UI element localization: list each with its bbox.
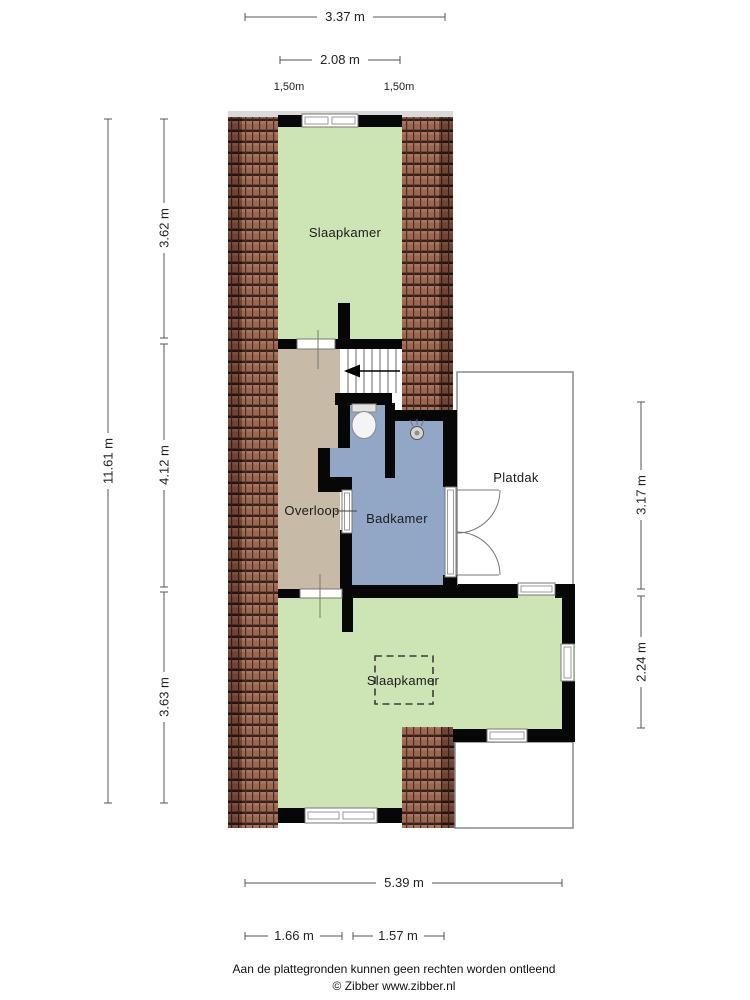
- dim-label: 5.39 m: [384, 875, 424, 890]
- wall-segment: [278, 115, 302, 127]
- wall-segment: [377, 808, 402, 823]
- wall-segment: [278, 589, 300, 598]
- wall-segment: [527, 729, 575, 742]
- room-label-flat-roof: Platdak: [493, 470, 539, 485]
- footer: Aan de plattegronden kunnen geen rechten…: [233, 962, 556, 993]
- headroom-label-right: 1,50m: [384, 81, 415, 93]
- dim-top-inner-width: 2.08 m: [280, 52, 400, 67]
- dim-right-top: 3.17 m: [634, 402, 649, 589]
- room-label-bedroom-top: Slaapkamer: [309, 225, 382, 240]
- flat-roof-lower: [455, 742, 573, 828]
- window-bottom-bedroom: [305, 808, 377, 823]
- dim-label: 3.17 m: [634, 475, 649, 515]
- wall-segment: [443, 410, 457, 487]
- dim-bottom-left: 1.66 m: [245, 928, 342, 943]
- footer-credit: © Zibber www.zibber.nl: [333, 979, 456, 993]
- roof-strip-left-edge: [228, 117, 242, 828]
- headroom-label-left: 1,50m: [274, 81, 305, 93]
- room-label-bathroom: Badkamer: [366, 511, 428, 526]
- dim-left-top: 3.62 m: [157, 119, 172, 338]
- window-extension-bottom: [487, 729, 527, 742]
- dim-bottom-right: 1.57 m: [353, 928, 444, 943]
- stair-well: [340, 343, 402, 393]
- wall-segment: [358, 115, 402, 127]
- dim-left-total: 11.61 m: [101, 119, 116, 803]
- floorplan-canvas: Slaapkamer Overloop Badkamer Platdak Sla…: [0, 0, 750, 1000]
- wall-segment: [342, 598, 353, 632]
- room-label-bedroom-bottom: Slaapkamer: [367, 673, 440, 688]
- dim-bottom-total: 5.39 m: [245, 875, 562, 890]
- window-top-bedroom: [302, 114, 358, 127]
- roof-patch-bottom-edge: [441, 727, 455, 828]
- dim-label: 3.62 m: [157, 208, 172, 248]
- floorplan-page: Slaapkamer Overloop Badkamer Platdak Sla…: [0, 0, 750, 1000]
- wall-segment: [562, 584, 575, 644]
- dim-label: 2.08 m: [320, 52, 360, 67]
- window-extension-right: [561, 644, 574, 681]
- toilet-icon: [352, 404, 376, 439]
- wall-segment: [338, 393, 350, 448]
- wall-segment: [385, 403, 395, 478]
- wall-segment: [278, 808, 305, 823]
- wall-segment: [453, 729, 487, 742]
- wall-segment: [338, 303, 350, 343]
- wall-segment: [340, 530, 352, 592]
- dim-label: 3.37 m: [325, 9, 365, 24]
- dim-label: 2.24 m: [634, 642, 649, 682]
- wall-segment: [278, 339, 297, 349]
- footer-disclaimer: Aan de plattegronden kunnen geen rechten…: [233, 962, 556, 976]
- dim-left-middle: 4.12 m: [157, 344, 172, 587]
- dim-top-width: 3.37 m: [245, 9, 445, 24]
- room-label-landing: Overloop: [284, 503, 339, 518]
- dim-label: 4.12 m: [157, 445, 172, 485]
- dim-label: 1.57 m: [378, 928, 418, 943]
- window-extension-top: [518, 583, 555, 595]
- dim-label: 1.66 m: [274, 928, 314, 943]
- dim-label: 11.61 m: [101, 438, 116, 484]
- wall-segment: [458, 584, 518, 598]
- dim-left-bottom: 3.63 m: [157, 592, 172, 803]
- dim-label: 3.63 m: [157, 677, 172, 717]
- dim-right-bottom: 2.24 m: [634, 596, 649, 728]
- roof-strip-right-top-edge: [439, 117, 453, 412]
- wall-segment: [340, 585, 458, 598]
